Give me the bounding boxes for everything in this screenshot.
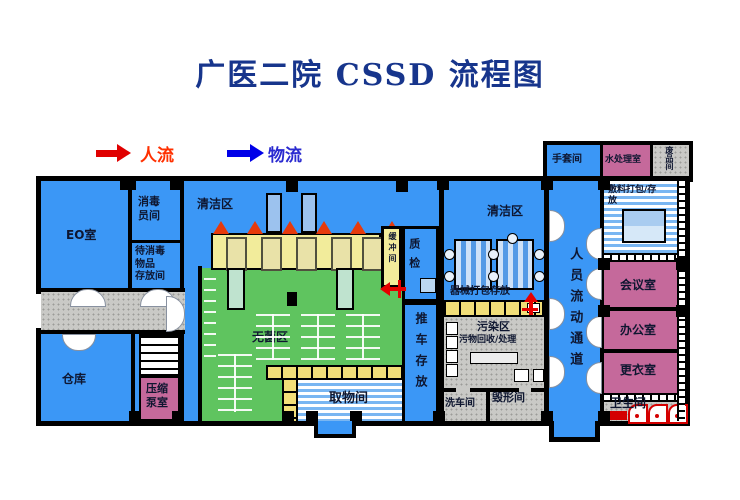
wall-pillar bbox=[129, 411, 141, 421]
stool-icon bbox=[444, 249, 455, 260]
sterilizer-icon bbox=[296, 237, 317, 271]
corridor-entry-gap bbox=[36, 294, 41, 328]
stairs-icon bbox=[139, 334, 180, 376]
divider-hatch bbox=[604, 253, 685, 262]
dressing-packing-label-2: 放 bbox=[608, 196, 656, 207]
radiator-hatch bbox=[677, 181, 685, 421]
clean-zone-right-label: 清洁区 bbox=[487, 204, 523, 219]
wall-pillar bbox=[598, 411, 610, 421]
scrap-room-label: 废品间 bbox=[664, 146, 674, 178]
table-icon bbox=[622, 209, 666, 243]
door-gap bbox=[456, 388, 470, 392]
office-label: 办公室 bbox=[620, 323, 656, 338]
flame-icon bbox=[316, 221, 332, 234]
sterilizer-icon bbox=[331, 237, 352, 271]
sterilizer-icon bbox=[261, 237, 282, 271]
buffer-room-label: 缓冲间 bbox=[387, 232, 397, 284]
material-flow-arrow-icon bbox=[227, 150, 250, 157]
flame-icon bbox=[282, 221, 298, 234]
disinfection-staff-label-2: 员间 bbox=[138, 209, 160, 223]
shelf-rack-icon bbox=[204, 278, 216, 362]
wall bbox=[180, 181, 184, 288]
clean-zone-left-label: 清洁区 bbox=[197, 197, 233, 212]
contaminated-zone-label: 污染区 bbox=[477, 320, 510, 334]
sterilizer-icon bbox=[266, 193, 282, 233]
shelf-rack-icon bbox=[346, 314, 380, 360]
wall-pillar bbox=[541, 411, 553, 421]
people-flow-label: 人流 bbox=[140, 141, 174, 166]
quality-check-label: 质检 bbox=[407, 238, 421, 284]
packing-table-icon bbox=[496, 239, 534, 290]
cart-storage-label: 推车存放 bbox=[413, 312, 428, 414]
toilet-stall-icon bbox=[648, 404, 668, 424]
pickup-exit-bump bbox=[314, 421, 356, 438]
compression-pump-label-2: 泵室 bbox=[146, 396, 168, 410]
sterilizer-icon bbox=[226, 237, 247, 271]
people-flow-arrowhead-icon bbox=[380, 282, 390, 296]
stool-icon bbox=[488, 249, 499, 260]
wall-pillar bbox=[598, 258, 610, 270]
people-flow-arrowhead-icon bbox=[524, 292, 538, 302]
sterilizer-unload-icon bbox=[336, 268, 354, 310]
wall-pillar bbox=[350, 411, 362, 421]
wall-pillar bbox=[170, 176, 184, 190]
wall bbox=[486, 388, 490, 421]
toilet-label: 卫生间 bbox=[610, 396, 646, 411]
instrument-packing-label: 器械打包存放 bbox=[450, 286, 510, 299]
destruction-room-label: 毁形间 bbox=[492, 391, 525, 405]
wall-pillar bbox=[287, 292, 297, 306]
cart-wash-label: 洗车间 bbox=[445, 398, 475, 411]
locker-cell-icon bbox=[446, 364, 458, 377]
personnel-corridor-label: 人员流动通道 bbox=[566, 247, 582, 399]
wall-pillar bbox=[598, 305, 610, 317]
locker-cell-icon bbox=[446, 336, 458, 349]
flame-icon bbox=[350, 221, 366, 234]
table-icon bbox=[470, 352, 518, 364]
people-flow-tick-icon bbox=[398, 280, 401, 298]
wall-pillar bbox=[396, 181, 408, 192]
locker-cell-icon bbox=[446, 350, 458, 363]
compression-pump-label-1: 压缩 bbox=[146, 382, 168, 396]
dressing-packing-label-1: 敷料打包/存 bbox=[608, 185, 656, 196]
sink-icon bbox=[533, 369, 544, 382]
stool-icon bbox=[444, 271, 455, 282]
shelf-rack-icon bbox=[218, 354, 252, 412]
flame-icon bbox=[247, 221, 263, 234]
wall-pillar bbox=[120, 176, 136, 190]
packing-table-icon bbox=[454, 239, 492, 290]
people-flow-tick-icon bbox=[522, 308, 538, 311]
sterilizer-icon bbox=[362, 237, 383, 271]
warehouse-label: 仓库 bbox=[62, 372, 86, 387]
awaiting-storage-label-1: 待消毒 bbox=[135, 246, 165, 259]
awaiting-storage-label-2: 物品 bbox=[135, 259, 165, 272]
people-flow-arrow-icon bbox=[96, 150, 117, 157]
wall-pillar bbox=[286, 181, 298, 192]
wall-pillar bbox=[172, 411, 184, 421]
pickup-room-label: 取物间 bbox=[329, 391, 368, 407]
awaiting-storage-label-3: 存放间 bbox=[135, 271, 165, 284]
wall-pillar bbox=[433, 411, 445, 421]
page-title: 广医二院 CSSD 流程图 bbox=[0, 50, 740, 94]
water-treatment-label: 水处理室 bbox=[605, 155, 641, 166]
shelf-rack-icon bbox=[256, 314, 290, 360]
eo-room-label: EO室 bbox=[66, 228, 96, 243]
changing-room-label: 更衣室 bbox=[620, 363, 656, 378]
stool-icon bbox=[507, 233, 518, 244]
material-flow-arrowhead-icon bbox=[250, 144, 264, 162]
pickup-counter-cells bbox=[266, 365, 405, 380]
stool-icon bbox=[488, 271, 499, 282]
wall-pillar bbox=[598, 176, 610, 190]
corridor-exit-bump bbox=[549, 421, 600, 442]
sterilizer-unload-icon bbox=[227, 268, 245, 310]
locker-cell-icon bbox=[446, 322, 458, 335]
wall bbox=[180, 334, 184, 421]
material-flow-label: 物流 bbox=[268, 141, 302, 166]
table-icon bbox=[420, 278, 436, 293]
sink-icon bbox=[514, 369, 529, 382]
meeting-room-label: 会议室 bbox=[620, 278, 656, 293]
wall-pillar bbox=[541, 176, 553, 190]
glove-room-label: 手套间 bbox=[552, 154, 582, 167]
wall-pillar bbox=[282, 411, 294, 421]
waste-processing-label: 污物回收/处理 bbox=[459, 335, 516, 346]
sterilizer-icon bbox=[301, 193, 317, 233]
cssd-flowchart-page: 广医二院 CSSD 流程图 人流 物流 手套间 水处理室 废品间 EO室 消毒 … bbox=[0, 0, 740, 500]
wall-pillar bbox=[306, 411, 318, 421]
flame-icon bbox=[213, 221, 229, 234]
shelf-rack-icon bbox=[301, 314, 335, 360]
people-flow-arrowhead-icon bbox=[117, 144, 131, 162]
wall-pillar bbox=[676, 258, 687, 270]
wall-pillar bbox=[437, 176, 449, 190]
wall-pillar bbox=[676, 305, 687, 317]
disinfection-staff-label-1: 消毒 bbox=[138, 195, 160, 209]
